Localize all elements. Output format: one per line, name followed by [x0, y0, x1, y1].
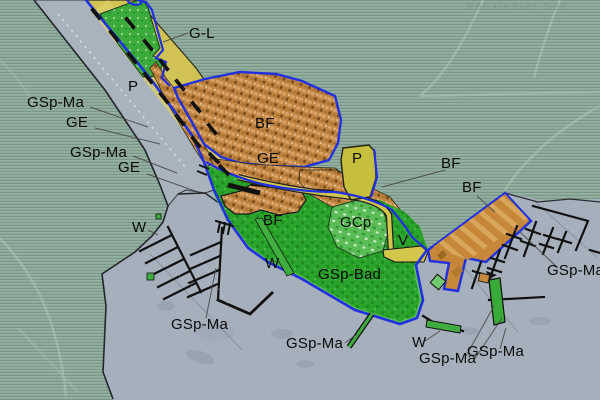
zoning-map-canvas[interactable]: [0, 0, 600, 400]
zoning-map-viewport[interactable]: Neusiedler See G-L P GSp-Ma GE GSp-Ma GE…: [0, 0, 600, 400]
zone-p: [341, 145, 376, 200]
